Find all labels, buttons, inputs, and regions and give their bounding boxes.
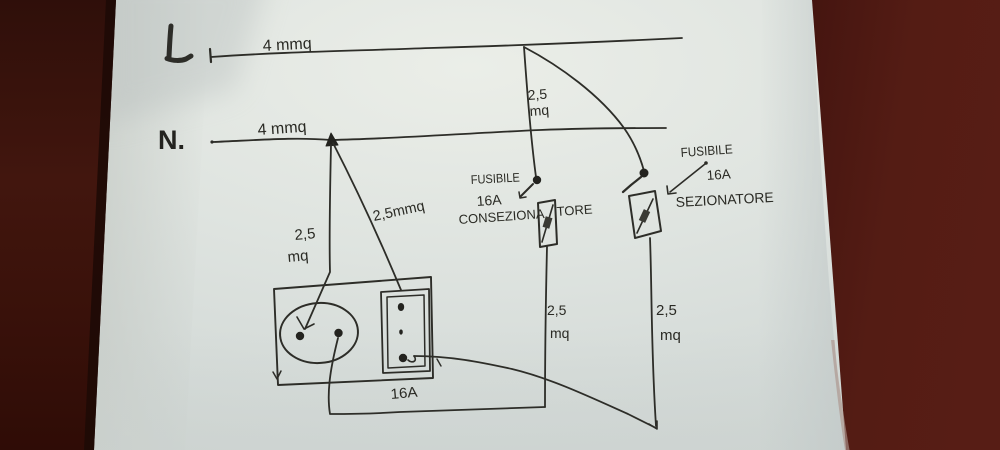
svg-text:2,5: 2,5	[656, 302, 677, 319]
svg-text:2,5: 2,5	[527, 86, 548, 103]
svg-text:4 mmq: 4 mmq	[257, 119, 307, 139]
svg-text:FUSIBILE: FUSIBILE	[470, 170, 520, 187]
svg-text:N.: N.	[158, 125, 185, 155]
svg-text:2,5: 2,5	[547, 302, 567, 318]
svg-text:mq: mq	[529, 102, 550, 119]
svg-text:16A: 16A	[390, 385, 419, 403]
svg-text:mq: mq	[660, 327, 681, 344]
svg-text:mq: mq	[550, 325, 569, 341]
svg-text:16A: 16A	[706, 166, 731, 183]
svg-text:2,5: 2,5	[294, 225, 316, 244]
svg-text:16A: 16A	[476, 191, 503, 209]
svg-text:mq: mq	[287, 247, 309, 266]
svg-text:4 mmq: 4 mmq	[262, 35, 312, 55]
svg-text:TORE: TORE	[556, 202, 593, 219]
